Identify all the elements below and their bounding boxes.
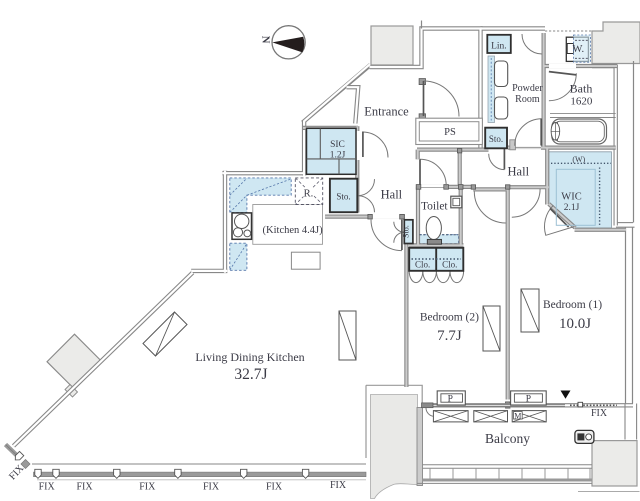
svg-text:Bedroom (2): Bedroom (2) xyxy=(420,312,479,324)
svg-text:P: P xyxy=(526,395,531,405)
svg-text:PS: PS xyxy=(444,127,456,138)
svg-text:Room: Room xyxy=(515,94,540,105)
svg-text:FIX: FIX xyxy=(266,482,283,493)
svg-text:Toilet: Toilet xyxy=(421,201,448,213)
svg-text:(Kitchen 4.4J): (Kitchen 4.4J) xyxy=(263,225,324,236)
svg-text:Entrance: Entrance xyxy=(364,105,409,119)
svg-text:7.7J: 7.7J xyxy=(437,328,462,344)
svg-text:Clo.: Clo. xyxy=(442,259,457,269)
svg-text:10.0J: 10.0J xyxy=(559,316,591,332)
svg-text:FIX: FIX xyxy=(330,480,347,491)
svg-text:FIX: FIX xyxy=(591,408,608,419)
svg-text:N: N xyxy=(260,36,271,44)
svg-text:Balcony: Balcony xyxy=(485,431,530,446)
svg-text:M: M xyxy=(514,412,521,421)
svg-text:Hall: Hall xyxy=(381,188,403,202)
svg-text:SIC: SIC xyxy=(330,140,345,150)
svg-text:FIX: FIX xyxy=(203,482,220,493)
svg-text:Clo.: Clo. xyxy=(415,259,430,269)
svg-text:Sto.: Sto. xyxy=(336,192,350,202)
svg-text:FIX: FIX xyxy=(76,482,93,493)
svg-text:2.1J: 2.1J xyxy=(564,203,580,213)
svg-text:Hall: Hall xyxy=(508,165,530,179)
svg-text:W.: W. xyxy=(573,44,585,55)
svg-text:R.: R. xyxy=(304,189,314,200)
svg-text:Bath: Bath xyxy=(570,82,593,96)
svg-text:FIX: FIX xyxy=(39,482,56,493)
svg-text:1.2J: 1.2J xyxy=(330,151,346,161)
svg-text:P: P xyxy=(448,395,453,405)
svg-text:Living Dining Kitchen: Living Dining Kitchen xyxy=(195,350,304,364)
svg-text:Sto.: Sto. xyxy=(402,225,411,238)
svg-text:Powder: Powder xyxy=(512,83,543,94)
svg-text:Sto.: Sto. xyxy=(489,134,503,144)
svg-text:Bedroom (1): Bedroom (1) xyxy=(543,299,602,311)
svg-text:Lin.: Lin. xyxy=(491,41,507,51)
svg-text:1620: 1620 xyxy=(570,96,593,108)
svg-text:32.7J: 32.7J xyxy=(234,366,267,383)
svg-text:(W): (W) xyxy=(572,155,585,164)
svg-text:FIX: FIX xyxy=(139,482,156,493)
svg-text:WIC: WIC xyxy=(561,192,581,203)
